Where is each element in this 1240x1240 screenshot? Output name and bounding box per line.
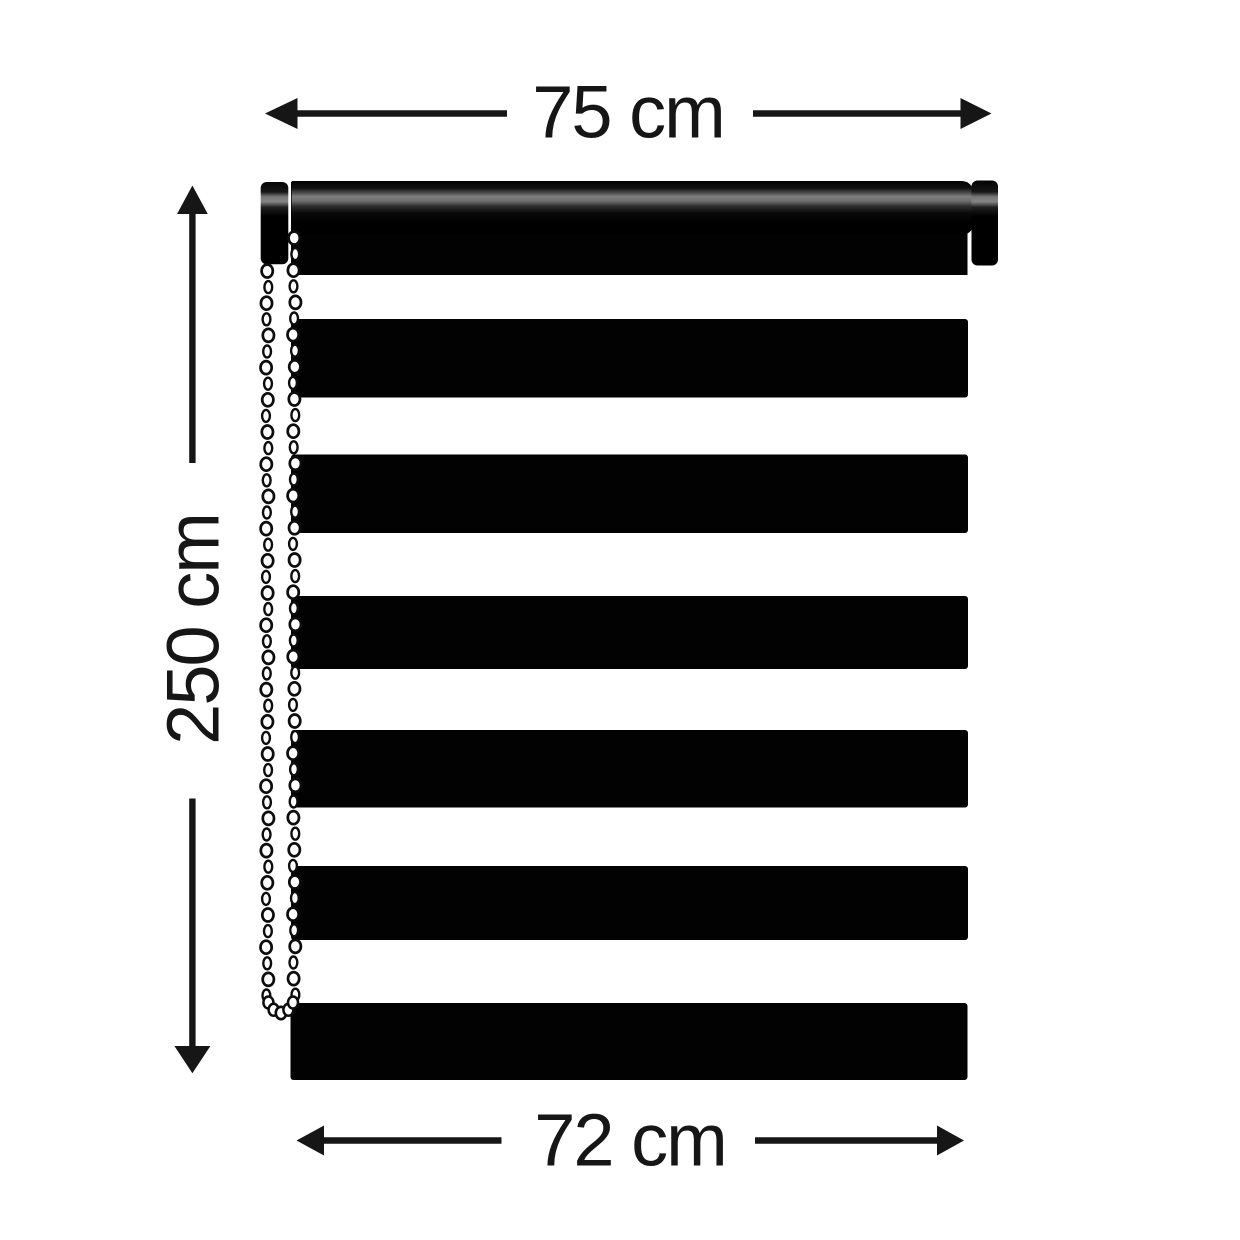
svg-text:72 cm: 72 cm	[534, 1099, 726, 1182]
svg-text:250 cm: 250 cm	[151, 514, 234, 745]
svg-text:75 cm: 75 cm	[532, 71, 724, 154]
